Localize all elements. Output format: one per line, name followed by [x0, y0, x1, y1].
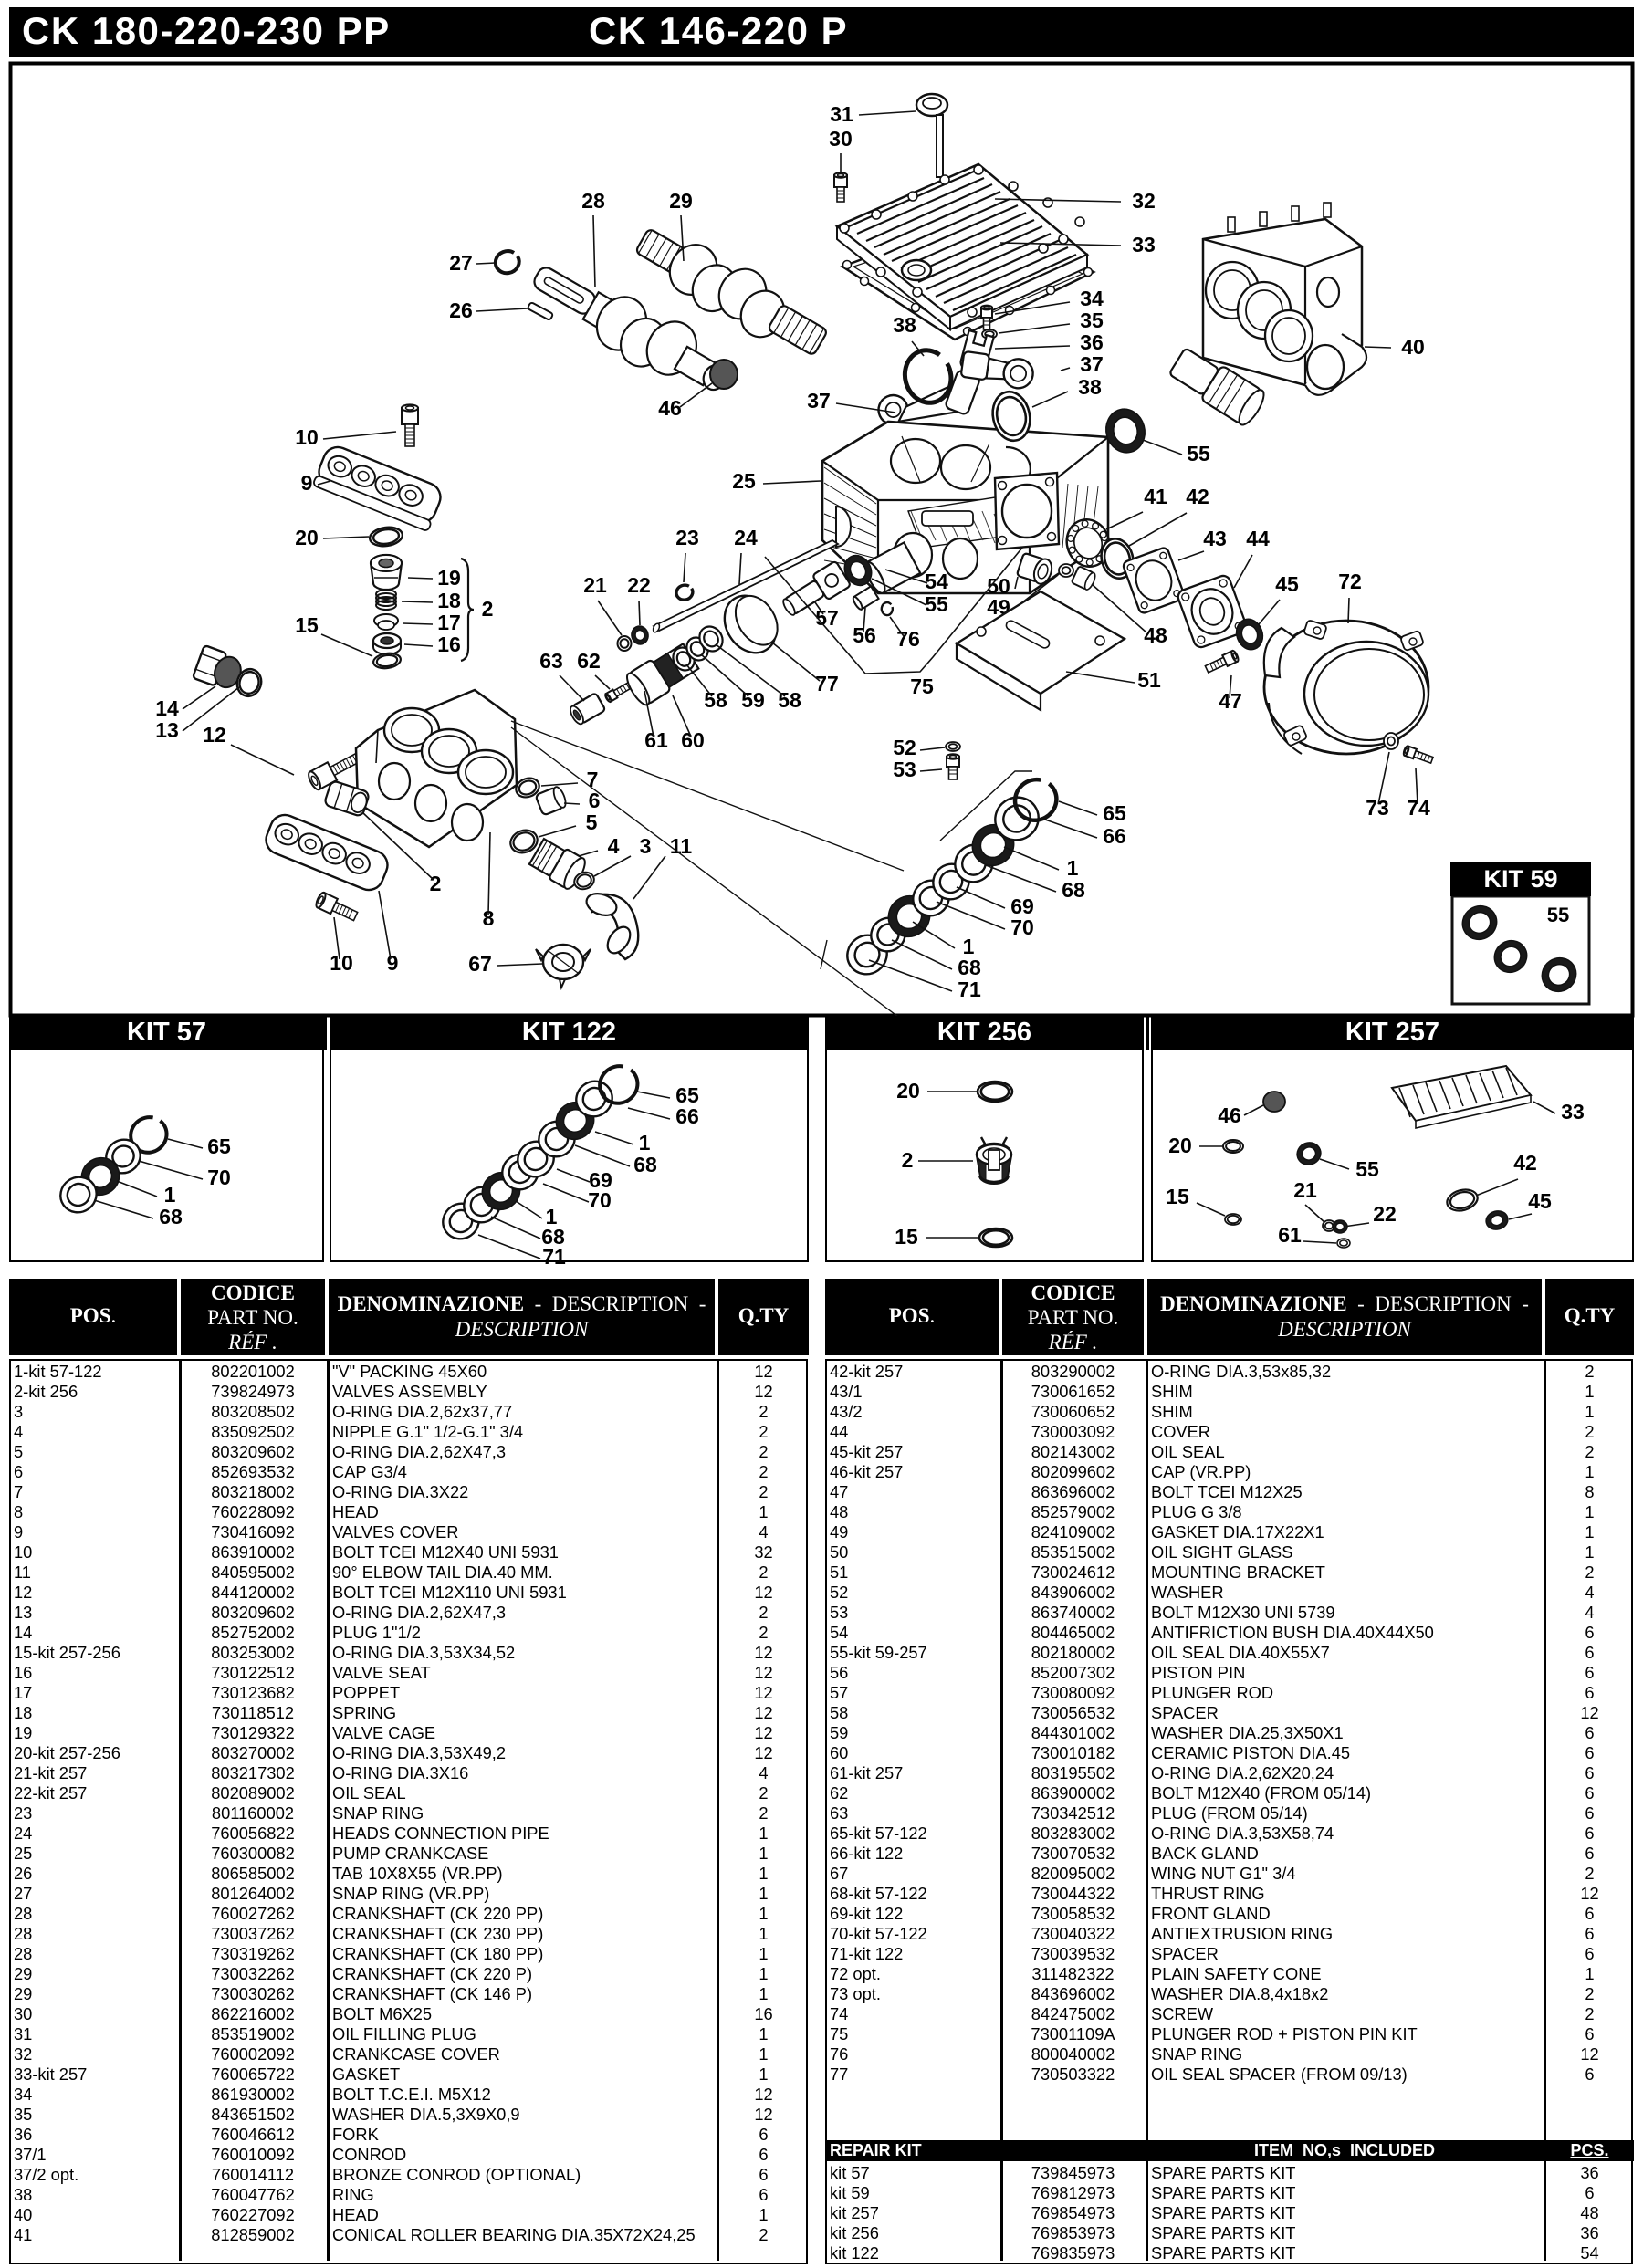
svg-text:59: 59: [741, 688, 765, 712]
svg-text:37: 37: [1080, 352, 1104, 376]
svg-text:68: 68: [1062, 878, 1085, 902]
svg-text:54: 54: [925, 570, 948, 593]
svg-text:41: 41: [1144, 485, 1167, 508]
svg-text:1: 1: [639, 1131, 651, 1155]
svg-text:74: 74: [1407, 796, 1430, 820]
svg-text:58: 58: [778, 688, 801, 712]
svg-text:65: 65: [1103, 801, 1126, 825]
svg-text:KIT 59: KIT 59: [1483, 865, 1557, 893]
svg-text:19: 19: [437, 566, 461, 590]
svg-text:23: 23: [675, 526, 699, 549]
svg-text:60: 60: [681, 728, 705, 752]
svg-text:15: 15: [1166, 1185, 1189, 1208]
svg-text:10: 10: [330, 951, 353, 975]
svg-text:68: 68: [958, 956, 981, 979]
svg-text:29: 29: [669, 189, 693, 213]
svg-text:55: 55: [925, 592, 948, 616]
svg-text:14: 14: [155, 696, 179, 720]
svg-text:46: 46: [1218, 1103, 1241, 1127]
svg-text:9: 9: [301, 471, 313, 495]
svg-text:22: 22: [627, 573, 651, 597]
svg-text:77: 77: [815, 672, 839, 695]
svg-text:20: 20: [896, 1079, 920, 1103]
svg-text:9: 9: [387, 951, 399, 975]
svg-text:37: 37: [807, 389, 831, 413]
svg-text:71: 71: [542, 1245, 566, 1269]
svg-text:53: 53: [893, 758, 916, 781]
svg-text:46: 46: [658, 396, 682, 420]
svg-text:20: 20: [1168, 1134, 1192, 1157]
svg-text:22: 22: [1373, 1202, 1397, 1226]
svg-text:2: 2: [430, 872, 442, 895]
svg-text:18: 18: [437, 589, 461, 612]
svg-text:31: 31: [830, 102, 853, 126]
svg-text:63: 63: [539, 649, 563, 673]
svg-text:35: 35: [1080, 308, 1104, 332]
svg-text:42: 42: [1513, 1151, 1537, 1175]
svg-text:55: 55: [1547, 904, 1569, 926]
svg-text:36: 36: [1080, 330, 1104, 354]
svg-text:44: 44: [1246, 527, 1270, 550]
svg-text:66: 66: [1103, 824, 1126, 848]
svg-text:48: 48: [1144, 623, 1167, 647]
svg-text:68: 68: [159, 1205, 183, 1228]
svg-text:61: 61: [644, 728, 668, 752]
svg-text:24: 24: [734, 526, 758, 549]
svg-text:40: 40: [1401, 335, 1425, 359]
svg-text:12: 12: [203, 723, 226, 747]
svg-text:27: 27: [449, 251, 473, 275]
svg-text:38: 38: [1078, 375, 1102, 399]
svg-text:34: 34: [1080, 287, 1104, 310]
svg-text:55: 55: [1355, 1157, 1379, 1181]
svg-text:52: 52: [893, 736, 916, 759]
svg-text:3: 3: [640, 834, 652, 858]
svg-text:55: 55: [1187, 442, 1210, 465]
svg-text:25: 25: [732, 469, 756, 493]
svg-text:10: 10: [295, 425, 319, 449]
svg-text:62: 62: [577, 649, 601, 673]
svg-text:70: 70: [207, 1165, 231, 1189]
svg-text:70: 70: [588, 1188, 612, 1212]
svg-text:73: 73: [1366, 796, 1389, 820]
svg-text:2: 2: [482, 597, 494, 621]
svg-text:45: 45: [1528, 1189, 1552, 1213]
svg-text:33: 33: [1132, 233, 1156, 256]
svg-text:45: 45: [1275, 572, 1299, 596]
svg-text:43: 43: [1203, 527, 1227, 550]
svg-text:21: 21: [1293, 1178, 1317, 1202]
svg-text:68: 68: [633, 1153, 657, 1176]
svg-text:57: 57: [815, 606, 839, 630]
svg-text:4: 4: [608, 834, 620, 858]
svg-text:13: 13: [155, 718, 179, 742]
svg-text:2: 2: [902, 1148, 914, 1172]
svg-text:42: 42: [1186, 485, 1209, 508]
svg-text:30: 30: [829, 127, 853, 151]
svg-text:5: 5: [586, 810, 598, 834]
svg-text:17: 17: [437, 611, 461, 634]
svg-text:33: 33: [1561, 1100, 1585, 1124]
svg-text:70: 70: [1010, 915, 1034, 939]
svg-text:75: 75: [910, 674, 934, 698]
svg-text:67: 67: [468, 952, 492, 976]
svg-text:66: 66: [675, 1104, 699, 1128]
svg-text:20: 20: [295, 526, 319, 549]
svg-text:21: 21: [583, 573, 607, 597]
svg-text:61: 61: [1278, 1223, 1302, 1247]
svg-text:16: 16: [437, 632, 461, 656]
svg-text:72: 72: [1338, 570, 1362, 593]
svg-text:1: 1: [164, 1183, 176, 1207]
svg-text:1: 1: [1067, 856, 1079, 880]
svg-text:71: 71: [958, 977, 981, 1001]
svg-text:15: 15: [895, 1225, 918, 1249]
svg-text:65: 65: [207, 1134, 231, 1158]
svg-text:38: 38: [893, 313, 916, 337]
svg-text:15: 15: [295, 613, 319, 637]
svg-text:51: 51: [1137, 668, 1161, 692]
svg-text:32: 32: [1132, 189, 1156, 213]
svg-text:26: 26: [449, 298, 473, 322]
svg-text:28: 28: [581, 189, 605, 213]
